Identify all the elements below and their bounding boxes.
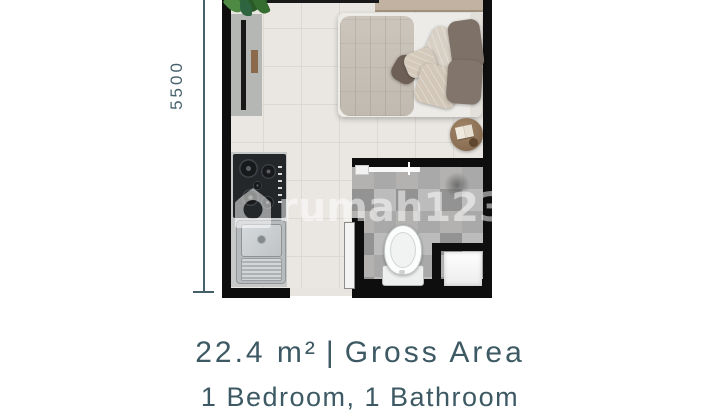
headboard <box>375 0 483 12</box>
wall-right <box>483 0 492 298</box>
toilet-flush <box>399 270 405 274</box>
watermark-text: rumah123 <box>278 185 492 231</box>
floorplan-page: 5500 <box>0 0 720 420</box>
entrance-doorway <box>290 288 352 296</box>
toilet-seat <box>390 232 416 268</box>
shower-door-handle <box>403 168 415 170</box>
wall-bottom-left <box>222 288 290 298</box>
pillow <box>446 59 484 105</box>
dimension-line <box>203 0 205 292</box>
area-label: Gross Area <box>345 336 525 369</box>
sink-drainboard <box>241 258 282 281</box>
floorplan-drawing: rumah123 <box>222 0 492 298</box>
wall-bathroom-top <box>352 158 492 167</box>
wall-shower-vertical <box>432 243 441 288</box>
watermark-house-icon <box>230 185 276 231</box>
wall-left <box>222 0 231 298</box>
area-value: 22.4 m² <box>195 336 318 369</box>
separator: | <box>318 336 345 369</box>
small-pot <box>469 138 478 147</box>
stove-burner <box>261 164 276 179</box>
console-item <box>251 50 258 73</box>
stove-burner <box>239 159 258 178</box>
sink-faucet <box>258 236 265 243</box>
dimension-tick-bottom <box>193 291 214 293</box>
watermark: rumah123 <box>230 182 486 234</box>
dimension-label: 5500 <box>167 55 187 115</box>
shower-tray <box>444 252 482 286</box>
area-summary: 22.4 m²|Gross Area <box>0 336 720 370</box>
tv <box>241 20 246 110</box>
plant-leaf <box>240 0 252 16</box>
shower-glass-end <box>355 165 369 175</box>
rooms-summary: 1 Bedroom, 1 Bathroom <box>0 382 720 413</box>
